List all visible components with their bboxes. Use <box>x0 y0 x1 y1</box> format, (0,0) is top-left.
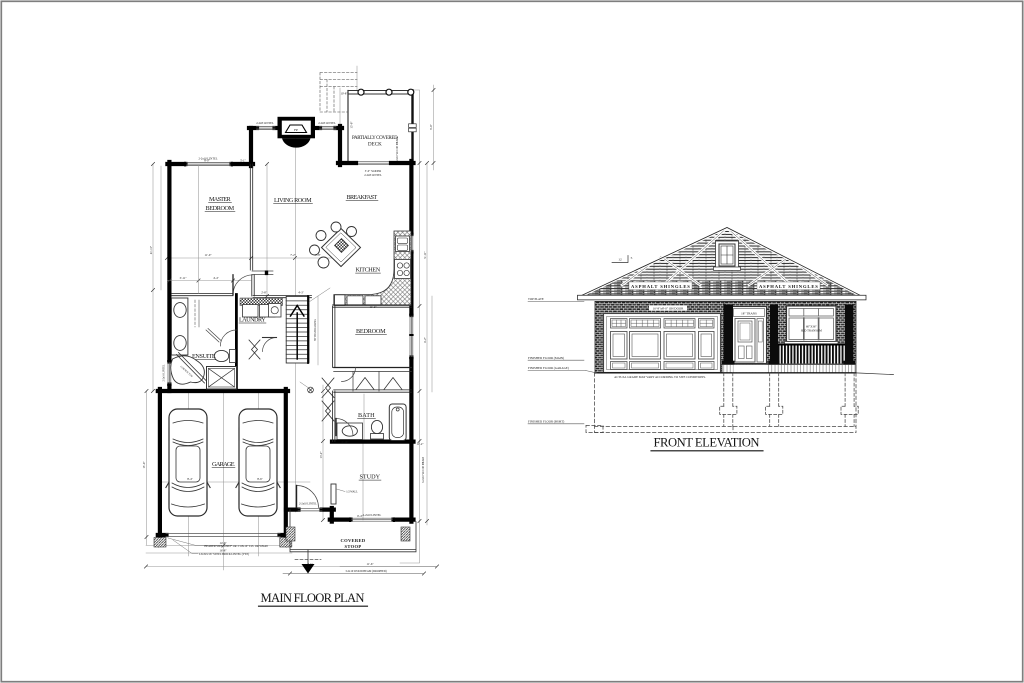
svg-text:18" TRANS: 18" TRANS <box>741 311 757 315</box>
svg-text:5: 5 <box>631 256 633 260</box>
svg-text:6'-4": 6'-4" <box>357 514 363 518</box>
svg-text:9'-11": 9'-11" <box>423 252 427 259</box>
svg-text:LIVING ROOM: LIVING ROOM <box>274 197 312 204</box>
svg-text:ENSUITE: ENSUITE <box>192 353 216 360</box>
svg-text:4'-4": 4'-4" <box>213 276 219 280</box>
svg-text:STOOP: STOOP <box>345 544 362 549</box>
svg-text:14'-0": 14'-0" <box>220 541 227 545</box>
svg-text:11'-6": 11'-6" <box>367 562 374 566</box>
svg-text:FINISHED FLOOR (BSMT): FINISHED FLOOR (BSMT) <box>528 419 564 423</box>
svg-text:2-2x10 LINTEL: 2-2x10 LINTEL <box>299 503 317 506</box>
svg-text:16'-8": 16'-8" <box>220 549 227 553</box>
svg-text:BATH: BATH <box>358 412 375 419</box>
svg-text:6'-2": 6'-2" <box>423 337 427 343</box>
svg-text:2-2x8 LINTEL: 2-2x8 LINTEL <box>318 121 336 125</box>
svg-text:12: 12 <box>618 258 622 262</box>
svg-text:ACTUAL GRADE MAY VARY ACCORDIN: ACTUAL GRADE MAY VARY ACCORDING TO SITE … <box>614 375 706 379</box>
svg-text:PARTIALLY COVERED: PARTIALLY COVERED <box>352 136 398 141</box>
svg-text:2'-8": 2'-8" <box>261 291 267 295</box>
svg-text:TOP PLATE: TOP PLATE <box>528 297 544 301</box>
svg-text:2-2x10 LINTEL: 2-2x10 LINTEL <box>163 364 166 381</box>
svg-text:MASTER: MASTER <box>209 196 231 203</box>
svg-text:DECK: DECK <box>368 143 382 148</box>
svg-text:4'-1": 4'-1" <box>307 562 313 566</box>
svg-text:BEDROOM: BEDROOM <box>206 205 235 212</box>
svg-text:15'-8": 15'-8" <box>349 122 353 129</box>
svg-text:2-2x8 LINTEL: 2-2x8 LINTEL <box>364 173 382 177</box>
svg-text:FRONT ELEVATION: FRONT ELEVATION <box>654 436 761 450</box>
svg-text:STUDY: STUDY <box>360 474 381 481</box>
svg-text:2-2x10 LINTEL: 2-2x10 LINTEL <box>363 514 382 517</box>
svg-text:BREAKFAST: BREAKFAST <box>347 194 378 201</box>
svg-text:SLD TRANSOM: SLD TRANSOM <box>801 329 822 333</box>
svg-text:COVERED: COVERED <box>340 538 365 543</box>
svg-text:GARAGE: GARAGE <box>212 461 235 468</box>
svg-text:1/2 WALL: 1/2 WALL <box>346 491 358 494</box>
svg-text:36" HIGH RAILING: 36" HIGH RAILING <box>314 319 317 341</box>
svg-text:3'-11": 3'-11" <box>180 276 187 280</box>
svg-text:11'-0": 11'-0" <box>205 253 212 257</box>
svg-text:8'-4": 8'-4" <box>187 477 193 481</box>
svg-text:8'-0": 8'-0" <box>204 159 210 163</box>
svg-text:MAIN FLOOR PLAN: MAIN FLOOR PLAN <box>261 591 366 605</box>
svg-text:16'-8"x8'-0" OH DOOR: 16'-8"x8'-0" OH DOOR <box>653 307 685 311</box>
svg-text:2-2x10 WOOD BEAM: 2-2x10 WOOD BEAM <box>396 136 399 163</box>
svg-text:FINISHED FLOOR (GARAGE): FINISHED FLOOR (GARAGE) <box>528 366 569 370</box>
svg-text:KITCHEN: KITCHEN <box>356 267 381 274</box>
svg-text:ASPHALT SHINGLES: ASPHALT SHINGLES <box>631 284 690 289</box>
svg-text:L5x3x5/16" STEEL BRICK LINTEL: L5x3x5/16" STEEL BRICK LINTEL (TYP) <box>199 553 249 556</box>
svg-text:4'-3": 4'-3" <box>298 291 304 295</box>
svg-text:3-2x10 WOOD BEAM (DROPPED): 3-2x10 WOOD BEAM (DROPPED) <box>345 570 386 573</box>
svg-text:11'-2": 11'-2" <box>370 305 377 309</box>
svg-text:FINISHED FLOOR (MAIN): FINISHED FLOOR (MAIN) <box>528 356 564 360</box>
svg-text:LAUNDRY: LAUNDRY <box>239 317 266 324</box>
svg-text:7'-2": 7'-2" <box>290 253 296 257</box>
svg-text:2'-10": 2'-10" <box>342 440 349 444</box>
svg-text:FP: FP <box>294 128 298 132</box>
svg-text:BEDROOM: BEDROOM <box>356 328 386 335</box>
svg-text:ASPHALT SHINGLES: ASPHALT SHINGLES <box>759 284 818 289</box>
svg-text:9'-0": 9'-0" <box>429 124 433 130</box>
svg-text:8'-6": 8'-6" <box>257 477 263 481</box>
svg-text:41'-11": 41'-11" <box>149 246 153 254</box>
svg-text:15'-0": 15'-0" <box>142 462 146 469</box>
svg-text:10'-8": 10'-8" <box>341 92 348 96</box>
svg-text:13'-2": 13'-2" <box>319 452 323 459</box>
svg-text:2'-8": 2'-8" <box>315 253 321 257</box>
svg-text:3-2x10 WOOD BEAM: 3-2x10 WOOD BEAM <box>422 456 425 483</box>
svg-text:HEADER SIZE 3-2x12" OR 3 5/8x1: HEADER SIZE 3-2x12" OR 3 5/8x10" LVL OR … <box>204 545 268 548</box>
svg-text:5'-1": 5'-1" <box>240 159 246 163</box>
svg-text:11'-2": 11'-2" <box>417 442 424 446</box>
svg-text:2-2x8 LINTEL: 2-2x8 LINTEL <box>256 121 274 125</box>
